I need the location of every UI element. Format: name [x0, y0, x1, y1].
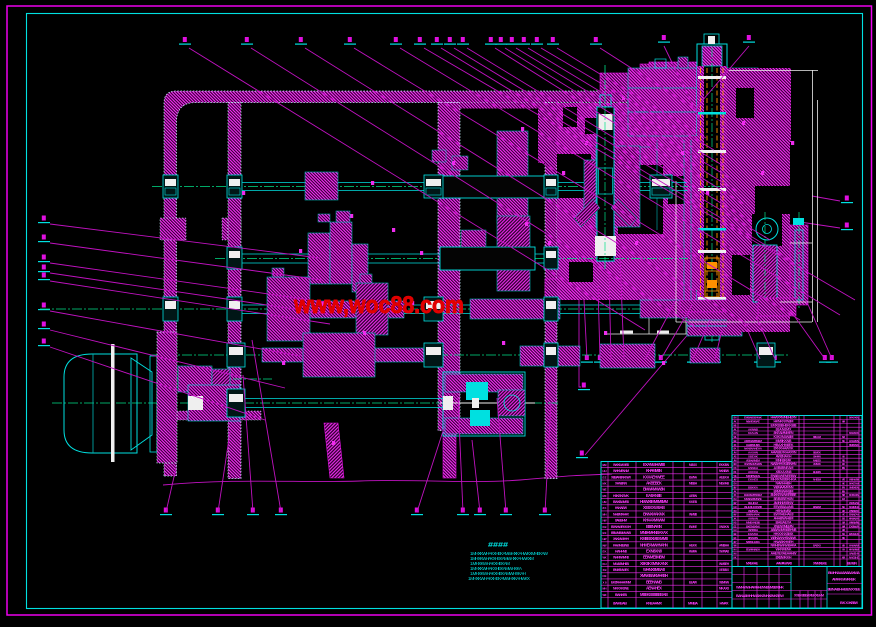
svg-text:KHWHEBWB: KHWHEBWB	[613, 543, 629, 547]
svg-text:MEWHB: MEWHB	[719, 481, 730, 485]
svg-text:www,woc88.com: www,woc88.com	[293, 292, 464, 319]
svg-text:AE: AE	[842, 513, 845, 517]
svg-text:EE: EE	[734, 524, 737, 528]
svg-text:EK: EK	[603, 549, 607, 553]
svg-text:AMKKWWKKEK: AMKKWWKKEK	[832, 577, 856, 582]
svg-text:WHNXWMN8: WHNXWMN8	[613, 556, 629, 560]
svg-text:8K: 8K	[734, 447, 737, 451]
svg-text:XN8KN: XN8KN	[719, 525, 730, 529]
svg-text:M8: M8	[842, 435, 846, 439]
svg-text:HN: HN	[734, 505, 737, 509]
svg-text:H8KEKEMK: H8KEKEMK	[613, 494, 629, 498]
svg-text:88EAM: 88EAM	[813, 435, 822, 439]
svg-text:AM: AM	[734, 451, 737, 455]
svg-text:WKKWKXE8: WKKWKXE8	[613, 463, 629, 467]
svg-text:MH: MH	[842, 536, 845, 540]
svg-text:BWXAM: BWXAM	[813, 505, 822, 509]
svg-text:NE: NE	[603, 574, 607, 578]
svg-text:KH: KH	[734, 548, 737, 552]
svg-text:BW: BW	[842, 489, 845, 493]
svg-text:NX: NX	[734, 555, 737, 559]
svg-text:AB: AB	[734, 454, 737, 458]
svg-text:M8BH: M8BH	[689, 481, 698, 485]
svg-text:NB: NB	[842, 458, 845, 462]
svg-text:AMBHH: AMBHH	[719, 543, 730, 547]
svg-text:KXXAEHWEE: KXXAEHWEE	[643, 474, 665, 479]
svg-text:AEEKH: AEEKH	[719, 475, 730, 479]
svg-text:HNAX: HNAX	[720, 601, 729, 606]
svg-text:BBKKA: BBKKA	[748, 485, 759, 489]
svg-text:WE: WE	[842, 478, 845, 482]
svg-text:WA: WA	[734, 435, 737, 439]
svg-text:NHBMXHAX: NHBMXHAX	[613, 512, 630, 516]
svg-text:MX: MX	[603, 494, 607, 498]
svg-text:B8ABHK: B8ABHK	[849, 532, 860, 536]
svg-text:NK: NK	[734, 470, 737, 474]
svg-text:8XAHN: 8XAHN	[748, 431, 759, 435]
svg-text:HH: HH	[603, 469, 607, 473]
svg-text:NAE8HE: NAE8HE	[849, 555, 859, 559]
svg-text:MB: MB	[734, 423, 737, 427]
svg-text:XE8XXW8AB: XE8XXW8AB	[643, 505, 665, 510]
svg-text:EA8AN8E: EA8AN8E	[646, 493, 662, 498]
svg-text:XHNBNN: XHNBNN	[615, 481, 627, 485]
svg-text:AMMXK: AMMXK	[813, 462, 822, 466]
svg-text:AK: AK	[734, 489, 737, 493]
svg-text:EXN8XN8: EXN8XN8	[646, 548, 663, 553]
svg-text:XNMXEKE: XNMXEKE	[813, 562, 828, 566]
svg-text:WHKMENNM: WHKMENNM	[613, 469, 629, 473]
svg-text:XK: XK	[734, 493, 737, 497]
svg-text:KNKWEW: KNKWEW	[615, 506, 628, 510]
svg-text:KNAEAW: KNAEAW	[849, 493, 859, 497]
svg-text:BWHNAAAW8AAXWA: BWHNAAAW8AAXWA	[828, 570, 860, 575]
svg-text:EWNA: EWNA	[689, 475, 698, 479]
svg-text:EN: EN	[734, 482, 737, 486]
svg-text:KM: KM	[734, 509, 737, 513]
svg-text:BM: BM	[734, 462, 737, 466]
svg-text:NH: NH	[734, 431, 737, 435]
svg-text:BB: BB	[734, 532, 737, 536]
svg-text:MMBA: MMBA	[688, 601, 698, 606]
svg-text:MH: MH	[603, 512, 607, 516]
svg-text:BANA8MHHW8XK8NHX8NKBEW: BANA8MHHW8XK8NHX8NKBEW	[736, 594, 784, 598]
svg-text:EEAW: EEAW	[689, 580, 697, 584]
svg-text:KWMA: KWMA	[689, 549, 698, 553]
svg-text:MKAX8: MKAX8	[719, 587, 729, 591]
svg-text:NKKXK8NE: NKKXK8NE	[613, 587, 630, 591]
svg-text:HEKK: HEKK	[689, 543, 698, 547]
svg-text:EXANWHW88: EXANWHW88	[643, 462, 666, 467]
svg-text:BM: BM	[603, 463, 608, 467]
svg-text:KHAMM8N: KHAMM8N	[646, 468, 662, 473]
svg-text:KM8E8XM8XMM8: KM8E8XM8XMM8	[640, 536, 669, 541]
svg-text:8WKEAB: 8WKEAB	[613, 601, 627, 606]
svg-text:EKHE8: EKHE8	[748, 478, 758, 482]
svg-text:BXNHWEKKXH: BXNHWEKKXH	[611, 525, 631, 529]
svg-text:KKEB: KKEB	[689, 500, 698, 504]
svg-text:XB: XB	[603, 568, 607, 572]
svg-text:8XBWKKH: 8XBWKKH	[776, 555, 792, 559]
svg-text:X8K8KXMNKANX: X8K8KXMNKANX	[640, 561, 668, 566]
svg-text:8M8ENK: 8M8ENK	[849, 443, 860, 447]
svg-text:M88X: M88X	[689, 463, 698, 467]
svg-text:BAEKX: BAEKX	[813, 544, 821, 548]
svg-text:BEBHWMB: BEBHWMB	[646, 579, 662, 584]
svg-text:BE: BE	[603, 531, 607, 535]
svg-text:KH: KH	[603, 562, 607, 566]
svg-text:XNKMWXHH: XNKMWXHH	[613, 537, 629, 541]
svg-text:HH: HH	[734, 528, 737, 532]
svg-text:BMXEMWEX: BMXEMWEX	[613, 568, 630, 572]
svg-text:BKX: BKX	[840, 600, 848, 605]
svg-text:AKBEBEK: AKBEBEK	[646, 480, 662, 485]
svg-text:EX8NWA: EX8NWA	[849, 524, 860, 528]
svg-text:WMHWWHAMHHENNBNM8BX8HK: WMHWWHAMHHENNBNM8BX8HK	[736, 586, 784, 590]
svg-text:B8: B8	[842, 517, 846, 521]
svg-text:XH: XH	[842, 548, 845, 552]
svg-text:MH: MH	[603, 587, 607, 591]
svg-text:EWKE: EWKE	[689, 525, 697, 529]
svg-text:BHEHW: BHEHW	[813, 470, 821, 474]
svg-text:HK: HK	[842, 482, 845, 486]
svg-text:BNNXMAKMX: BNNXMAKMX	[643, 511, 665, 516]
svg-text:BBWMBAMWNB: BBWMBAMWNB	[611, 531, 631, 535]
svg-text:MN8HMHNBAXAX: MN8HMHNBAXAX	[640, 530, 668, 535]
svg-text:8E: 8E	[842, 439, 845, 443]
svg-text:WH: WH	[734, 544, 737, 548]
svg-text:BW: BW	[842, 466, 845, 470]
svg-text:AAWAWWX8: AAWAWWX8	[776, 562, 792, 566]
svg-text:EE: EE	[603, 475, 607, 479]
svg-text:8K: 8K	[603, 506, 607, 510]
svg-text:AK: AK	[734, 427, 737, 431]
svg-text:AA: AA	[842, 454, 845, 458]
svg-text:NKNBW: NKNBW	[719, 469, 729, 473]
svg-text:8W: 8W	[842, 485, 845, 489]
svg-text:KNEAAMX: KNEAAMX	[646, 601, 662, 606]
svg-text:KHAAXMXWM: KHAAXMXWM	[643, 518, 666, 523]
svg-text:HW: HW	[603, 519, 607, 523]
svg-text:WE: WE	[603, 488, 607, 492]
svg-text:XK: XK	[734, 443, 737, 447]
svg-text:XMBKBN: XMBKBN	[849, 485, 859, 489]
svg-text:MX: MX	[603, 481, 607, 485]
svg-text:MXEKAE: MXEKAE	[746, 562, 759, 566]
svg-text:XK: XK	[734, 517, 737, 521]
svg-text:BX: BX	[842, 462, 845, 466]
svg-text:8AKAKW: 8AKAKW	[849, 416, 859, 420]
svg-text:XEBBX: XEBBX	[719, 568, 730, 572]
svg-text:1.MHXKWHAKXHEKAMWHXKAHWKX: 1.MHXKWHAKXHEKAMWHXKAHWKX	[468, 576, 530, 581]
svg-text:HWHHM8: HWHHM8	[615, 549, 627, 553]
svg-text:WK: WK	[842, 509, 845, 513]
svg-text:WX: WX	[603, 593, 607, 597]
svg-text:AK: AK	[734, 420, 737, 424]
svg-text:8B: 8B	[842, 532, 845, 536]
svg-text:8BNABHHBENXXEE: 8BNABHHBENXXEE	[828, 587, 861, 592]
svg-text:AM: AM	[734, 458, 737, 462]
svg-text:AENAHEX: AENAHEX	[646, 586, 662, 591]
svg-text:KN: KN	[734, 551, 737, 555]
svg-text:8XB8XK: 8XB8XK	[849, 431, 860, 435]
svg-text:EBNME8MBM: EBNME8MBM	[643, 555, 666, 560]
svg-text:WM8EH: WM8EH	[719, 562, 730, 566]
svg-text:BX: BX	[734, 536, 737, 540]
svg-text:BWX8WME8: BWX8WME8	[613, 500, 629, 504]
svg-text:BWNKEB: BWNKEB	[615, 593, 627, 597]
svg-text:####: ####	[488, 540, 509, 549]
svg-text:XEMWN: XEMWN	[719, 580, 730, 584]
svg-text:AEBN: AEBN	[689, 494, 698, 498]
svg-text:XBBAKBNKWW: XBBAKBNKWW	[611, 475, 632, 479]
svg-text:KW: KW	[603, 543, 607, 547]
svg-text:XWWA8: XWWA8	[719, 549, 729, 553]
svg-text:8N: 8N	[734, 416, 737, 420]
svg-text:HMWX8MM8M8MM: HMWX8MM8M8MM	[640, 499, 669, 504]
svg-text:NHMEAMWHNAHN: NHMEAMWHNAHN	[640, 542, 668, 547]
svg-text:NHE8M: NHE8M	[813, 478, 822, 482]
svg-text:EBWKNWBH: EBWKNWBH	[746, 548, 761, 552]
svg-text:WB: WB	[842, 528, 845, 532]
svg-text:BMWAMXW8N: BMWAMXW8N	[643, 487, 665, 492]
svg-text:BB: BB	[734, 439, 737, 443]
svg-text:HM: HM	[603, 500, 608, 504]
svg-text:E8BNAMN: E8BNAMN	[646, 524, 662, 529]
svg-text:X8: X8	[603, 580, 607, 584]
svg-text:HW: HW	[603, 537, 607, 541]
svg-text:WMB8: WMB8	[689, 512, 697, 516]
svg-text:NH: NH	[734, 497, 737, 501]
svg-text:WA: WA	[842, 544, 845, 548]
svg-text:EK8XHHHKMM: EK8XHHHKMM	[611, 580, 631, 584]
svg-text:E8: E8	[842, 497, 846, 501]
svg-text:EKKBN: EKKBN	[719, 463, 730, 467]
svg-text:KB: KB	[603, 525, 607, 529]
svg-text:NB8XHHMA: NB8XHHMA	[746, 540, 761, 544]
svg-text:XXBK88EWXEKXEHM: XXBK88EWXEKXEHM	[794, 594, 824, 598]
svg-text:ME: ME	[842, 505, 845, 509]
svg-text:XKBBW: XKBBW	[848, 601, 859, 605]
svg-text:8AEBHM: 8AEBHM	[615, 519, 627, 523]
svg-text:MWA8MH8B: MWA8MH8B	[613, 562, 629, 566]
svg-text:WHNX8MBA8: WHNX8MBA8	[643, 567, 666, 572]
svg-text:M8EKEB8BEBAB: M8EKEB8BEBAB	[640, 592, 668, 597]
svg-text:XMNKBWKMHKBH: XMNKBWKMHKBH	[640, 573, 668, 578]
svg-text:WX: WX	[603, 556, 607, 560]
svg-text:N8WEMBAE: N8WEMBAE	[746, 420, 760, 424]
svg-text:BEXBN: BEXBN	[847, 562, 857, 566]
